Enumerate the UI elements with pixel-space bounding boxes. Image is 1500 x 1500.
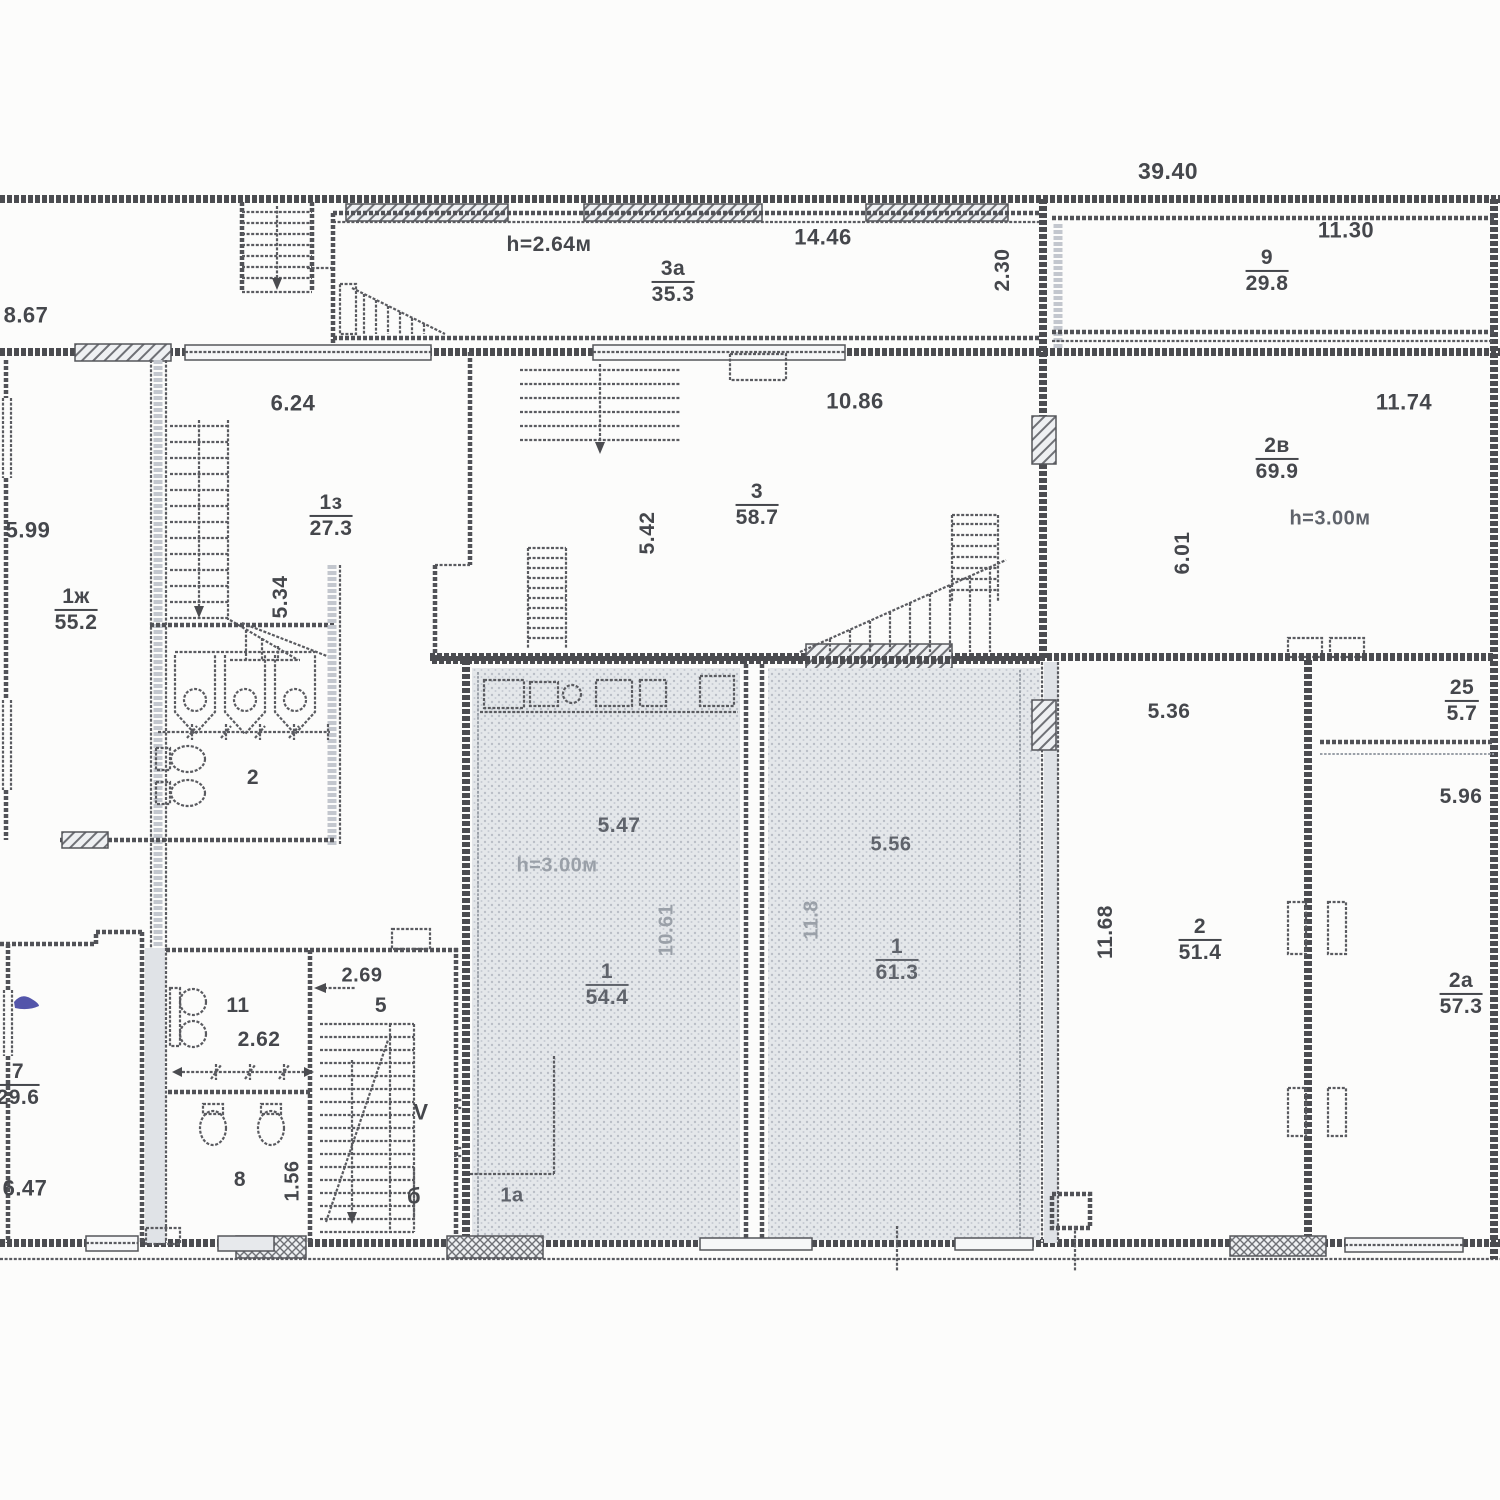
dim-5-99-label: 5.99 [6,518,51,541]
room-1zh-label: 1ж55.2 [55,586,98,634]
room-11-label: 11 [226,995,249,1017]
room-1-right-label: 161.3 [876,936,919,984]
dim-5-34-label: 5.34 [270,576,292,619]
dim-8-67-label: 8.67 [4,303,49,326]
room-1-left-label: 154.4 [586,961,629,1009]
dim-2-69-label: 2.69 [342,966,383,987]
room-1a-label: 1а [500,1186,523,1207]
dim-6-24-label: 6.24 [271,391,316,414]
room-8-label: 8 [234,1169,246,1191]
room-wc-2-label: 2 [247,767,259,789]
room-3-label: 358.7 [736,481,779,529]
dim-11-68-label: 11.68 [1095,905,1117,959]
dim-h-3-00-2v-label: h=3.00м [1289,509,1370,530]
dim-5-42-label: 5.42 [637,512,659,555]
dim-6-01-label: 6.01 [1172,532,1194,575]
floor-plan-sheet: 39.40h=2.64м3а35.314.462.30929.811.308.6… [0,0,1500,1500]
room-9-label: 929.8 [1246,247,1289,295]
stair-b-label: б [407,1184,421,1207]
dim-2-30-label: 2.30 [992,249,1014,292]
dim-11-74-label: 11.74 [1376,390,1432,413]
dim-h-2-64-label: h=2.64м [507,234,592,256]
dim-5-96-label: 5.96 [1440,786,1483,808]
dim-6-47-label: 6.47 [3,1176,48,1199]
dim-11-30-label: 11.30 [1318,218,1374,241]
dim-11-8-label: 11.8 [802,900,823,940]
dim-2-62-label: 2.62 [238,1029,281,1051]
stair-v-label: V [413,1100,428,1123]
stair-num-5-label: 5 [375,995,387,1017]
dim-1-56-label: 1.56 [283,1161,304,1202]
dim-14-46-label: 14.46 [794,225,852,248]
dim-5-47-label: 5.47 [598,815,641,837]
dim-39-40-label: 39.40 [1138,159,1198,183]
room-3a-label: 3а35.3 [652,258,695,306]
room-25-label: 255.7 [1445,677,1479,725]
dim-10-86-label: 10.86 [826,389,884,412]
room-2-label: 251.4 [1179,916,1222,964]
floor-plan-labels: 39.40h=2.64м3а35.314.462.30929.811.308.6… [0,0,1500,1500]
room-2v-label: 2в69.9 [1256,435,1299,483]
room-7-label: 729.6 [0,1061,39,1109]
dim-h-3-00-1-label: h=3.00м [516,856,597,877]
dim-10-61-label: 10.61 [657,904,678,957]
dim-5-56-label: 5.56 [871,835,912,856]
dim-5-36-label: 5.36 [1148,701,1191,723]
room-1z-label: 1з27.3 [310,492,353,540]
room-2a-label: 2а57.3 [1440,970,1483,1018]
